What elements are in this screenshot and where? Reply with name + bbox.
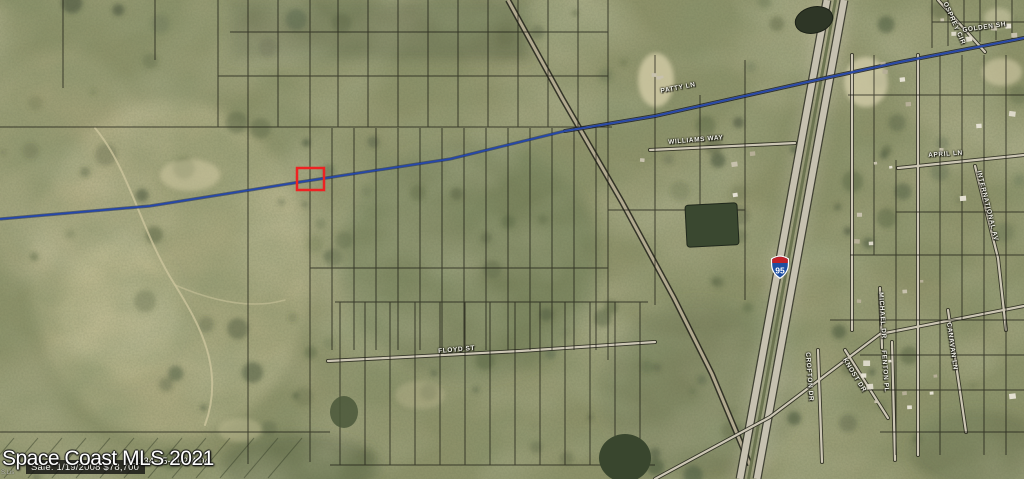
corner-watermark: S.Lis — [1, 470, 14, 476]
shield-number: 95 — [775, 266, 785, 276]
mls-watermark-title: Space Coast MLS 2021 — [2, 447, 214, 471]
map-viewport[interactable]: 95 — [0, 0, 1024, 479]
mls-map-screenshot: 95 PATTY LNWILLIAMS WAYFLOYD STGOLDEN SH… — [0, 0, 1024, 479]
aerial-imagery: 95 — [0, 0, 1024, 479]
pond-center — [685, 203, 739, 248]
pond-small — [330, 396, 358, 428]
